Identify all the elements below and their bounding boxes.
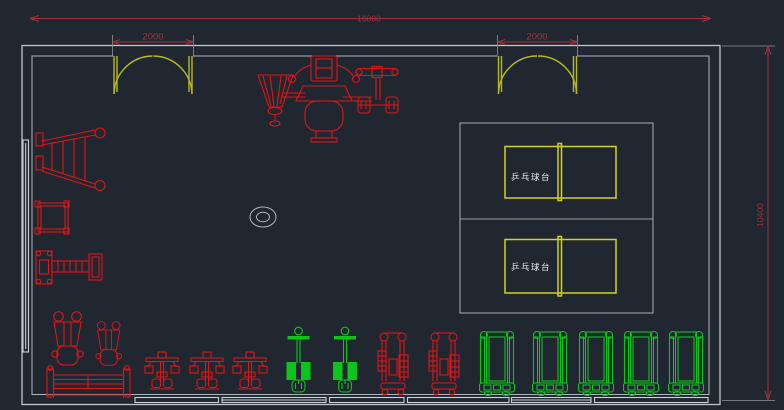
barbell-rack — [47, 366, 130, 397]
table-1-label: 乒乓球台 — [511, 172, 551, 182]
table-2-net — [558, 237, 562, 297]
ping-pong-table-2: 乒乓球台 — [505, 237, 616, 297]
floorplan-drawing: 16800 2000 2000 10400 — [0, 0, 784, 410]
door-left-swing-arc-2 — [154, 56, 193, 94]
shoulder-press-machine-3 — [233, 352, 267, 389]
dimension-overall-width: 16800 — [30, 14, 711, 24]
dim-label-overall-width: 16800 — [357, 14, 381, 24]
shoulder-press-machines — [145, 352, 267, 389]
dim-label-right-door: 2000 — [526, 32, 547, 43]
bottom-wall-windows — [135, 398, 708, 403]
dim-label-left-door: 2000 — [142, 32, 163, 43]
treadmill-5 — [669, 332, 704, 396]
ping-pong-table-1: 乒乓球台 — [505, 144, 616, 201]
treadmill-4 — [624, 332, 659, 396]
column-symbol — [250, 207, 276, 227]
door-left-swing-arc-1 — [114, 56, 153, 94]
treadmill-2 — [533, 332, 568, 396]
table-2-label: 乒乓球台 — [511, 262, 551, 272]
table-1-net — [558, 144, 562, 201]
spin-bike-1 — [287, 327, 311, 392]
ping-pong-court-area: 乒乓球台 乒乓球台 — [460, 123, 653, 313]
spin-bikes — [287, 327, 358, 392]
exercise-bikes-top-view — [52, 312, 122, 366]
bench-press-machine — [36, 251, 102, 284]
multi-station-gym — [258, 56, 398, 142]
door-right-swing-arc-1 — [499, 56, 538, 94]
wall-ladder-rack — [36, 128, 105, 191]
shoulder-press-machine-2 — [190, 352, 224, 389]
door-left — [114, 56, 192, 94]
dimension-left-door: 2000 — [113, 32, 194, 56]
dimension-overall-height: 10400 — [722, 46, 775, 401]
weight-stack-machines — [378, 333, 459, 395]
wall-outline — [22, 46, 720, 405]
exercise-bike-2 — [96, 322, 122, 366]
door-right — [499, 56, 577, 94]
cad-floorplan-canvas: 16800 2000 2000 10400 — [0, 0, 784, 410]
treadmills — [480, 332, 704, 396]
spin-bike-2 — [333, 327, 357, 392]
treadmill-3 — [579, 332, 614, 396]
door-right-swing-arc-2 — [538, 56, 577, 94]
outer-wall — [22, 46, 720, 405]
squat-frame — [35, 201, 69, 234]
exercise-bike-1 — [52, 312, 83, 365]
treadmill-1 — [480, 332, 515, 396]
weight-stack-machine-2 — [429, 333, 459, 395]
dim-label-overall-height: 10400 — [755, 203, 765, 227]
court-boundary — [460, 123, 653, 313]
window-strips — [23, 140, 708, 403]
dimension-right-door: 2000 — [498, 32, 578, 56]
shoulder-press-machine-1 — [145, 352, 179, 389]
weight-stack-machine-1 — [378, 333, 408, 395]
